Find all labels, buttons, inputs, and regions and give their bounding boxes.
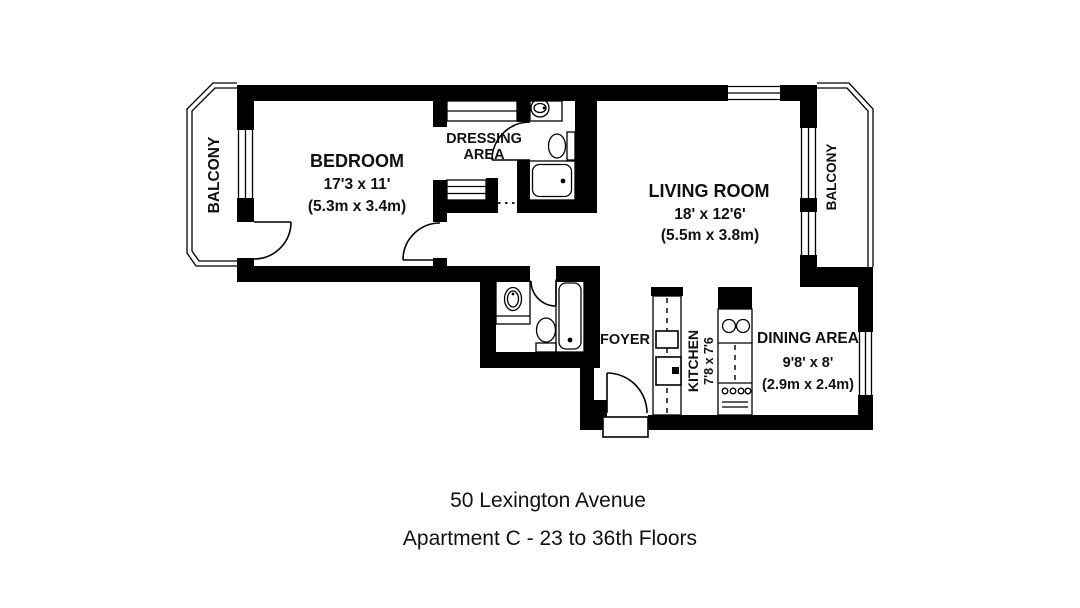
upper-bathroom-sink: [530, 99, 562, 121]
balcony-right-label: BALCONY: [824, 144, 839, 211]
foyer-label: FOYER: [600, 332, 650, 348]
address-line: 50 Lexington Avenue: [450, 489, 646, 512]
dining-area-dim-m: (2.9m x 2.4m): [762, 377, 854, 393]
dining-area-label: DINING AREA: [757, 330, 859, 347]
footer: 50 Lexington Avenue Apartment C - 23 to …: [403, 489, 697, 550]
dining-window: [860, 332, 872, 395]
lower-bathroom-tub: [556, 280, 584, 352]
upper-bathroom: [529, 99, 575, 200]
living-room-dim-m: (5.5m x 3.8m): [661, 227, 759, 244]
living-room-right-window-upper: [802, 128, 816, 198]
kitchen-label: KITCHEN: [685, 330, 701, 392]
entry-landing: [603, 417, 648, 437]
kitchen-range: [718, 383, 752, 407]
lower-bathroom-door: [531, 281, 556, 306]
kitchen-counter-left: [653, 296, 681, 415]
floorplan-canvas: BALCONY BALCONY: [0, 0, 1080, 608]
living-room-label: LIVING ROOM: [649, 181, 770, 201]
floorplan-page: BALCONY BALCONY: [0, 0, 1080, 608]
kitchen-stove: [723, 320, 750, 333]
balcony-door: [254, 222, 291, 259]
bedroom-door: [403, 223, 440, 260]
bedroom-dim-m: (5.3m x 3.4m): [308, 198, 406, 215]
kitchen-dim-ft: 7'8 x 7'6: [702, 337, 716, 385]
bedroom-window: [239, 130, 253, 198]
dining-area-dim-ft: 9'8' x 8': [783, 355, 834, 371]
kitchen-sink: [656, 331, 678, 348]
lower-bathroom: [496, 280, 584, 352]
kitchen-counter-right: [718, 309, 752, 415]
balcony-right: BALCONY: [817, 83, 873, 267]
bedroom-label: BEDROOM: [310, 151, 404, 171]
living-room-dim-ft: 18' x 12'6': [674, 206, 745, 223]
living-room-right-window-lower: [802, 212, 816, 255]
balcony-left: BALCONY: [187, 83, 237, 266]
balcony-left-label: BALCONY: [206, 136, 223, 213]
apartment-line: Apartment C - 23 to 36th Floors: [403, 527, 697, 550]
entry-door: [603, 373, 648, 437]
dressing-closet-bottom: [447, 180, 486, 200]
windows: [239, 87, 872, 396]
dressing-area-label-line1: DRESSING: [446, 131, 522, 147]
dressing-closet-top: [447, 101, 517, 121]
living-room-top-window: [728, 87, 780, 100]
lower-bathroom-toilet: [536, 318, 556, 352]
upper-bathroom-tub: [529, 161, 575, 200]
dressing-area-label-line2: AREA: [463, 147, 505, 163]
lower-bathroom-sink: [496, 281, 530, 324]
bedroom-dim-ft: 17'3 x 11': [324, 176, 391, 193]
upper-bathroom-toilet: [549, 132, 576, 160]
